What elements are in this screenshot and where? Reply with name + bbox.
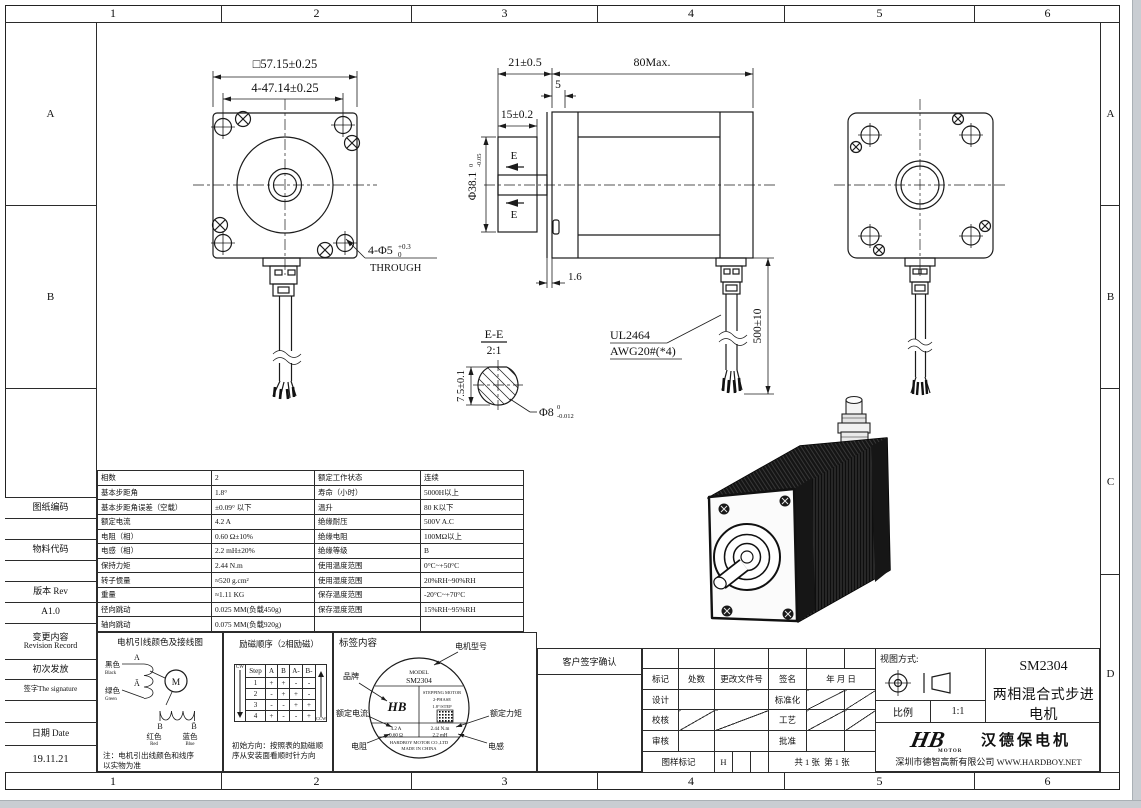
spec-value: 2.44 N.m	[212, 558, 315, 573]
rear-view-drawing	[830, 90, 1010, 400]
dim-body-length: 80Max.	[634, 55, 671, 69]
spec-value: ≈520 g.cm²	[212, 573, 315, 588]
part-title: 两相混合式步进电机	[986, 684, 1101, 724]
label-logo: HB	[387, 699, 407, 714]
spec-value: B	[421, 544, 524, 559]
scale-value: 1:1	[931, 701, 986, 723]
spec-label: 绝缘等级	[315, 544, 421, 559]
grid-col-label: 1	[5, 5, 222, 22]
callout-inductance: 电感	[488, 741, 504, 751]
material-code-label: 物料代码	[5, 540, 96, 561]
cw-arrow-cell: CW	[235, 665, 246, 722]
wiring-title: 电机引线颜色及接线图	[117, 636, 203, 647]
spec-table: 相数2额定工作状态连续 基本步距角1.8°寿命（小时）5000H以上 基本步距角…	[97, 470, 524, 632]
excitation-table: CW StepABA-B- CCW 1++-- 2-++- 3--++	[234, 664, 327, 722]
front-cable	[263, 258, 301, 399]
spec-value: 4.2 A	[212, 514, 315, 529]
spec-label: 基本步距角误差（空载）	[98, 500, 212, 515]
dim-tol-sup: +0.3	[398, 243, 411, 251]
excitation-box: 励磁顺序（2相励磁） CW StepABA-B- CCW	[223, 632, 333, 772]
side-view-drawing: 21±0.5 80Max. 5 15±0.2 Φ38.1 0 -0.05 E	[440, 50, 800, 420]
lead-blue-en: Blue	[185, 742, 194, 747]
dim-shaft-sub: -0.012	[557, 413, 574, 420]
callout-model: 电机型号	[455, 641, 487, 651]
part-model: SM2304	[986, 659, 1101, 675]
ccw-arrow-cell: CCW	[316, 665, 327, 722]
wiring-diagram-box: 电机引线颜色及接线图 黑色 Black A 绿色 Green Ā M B B̄ …	[97, 632, 223, 772]
sample-mark-value: H	[715, 752, 733, 773]
grid-col-label: 4	[598, 773, 785, 790]
bottom-scrollbar[interactable]	[0, 800, 1141, 808]
col-doc-no: 更改文件号	[715, 669, 769, 690]
company-cell: HB MOTOR 汉德保电机 深圳市德智高新有限公司 WWW.HARDBOY.N…	[876, 723, 1101, 773]
dim-shaft-dia: Φ8	[539, 405, 554, 419]
rev-label: 版本 Rev	[5, 582, 96, 603]
grid-row-label: D	[1101, 575, 1120, 772]
phase-b: B	[157, 722, 162, 731]
row-design: 设计	[643, 690, 679, 710]
dim-shaft-flat: 7.5±0.1	[456, 370, 467, 402]
projection-symbol-icon	[882, 669, 977, 697]
wiring-note-2: 以实物为准	[103, 760, 141, 770]
spec-value: 0.075 MM(负载920g)	[212, 617, 315, 632]
spec-value: 连续	[421, 471, 524, 486]
dim-square: □57.15±0.25	[253, 57, 317, 71]
spec-label: 电阻（相）	[98, 529, 212, 544]
dim-cable-length: 500±10	[752, 308, 764, 343]
callout-resistance: 电阻	[351, 741, 367, 751]
grid-col-label: 5	[785, 5, 975, 22]
grid-col-label: 6	[975, 5, 1120, 22]
date-label: 日期 Date	[5, 723, 96, 746]
callout-torque: 额定力矩	[490, 708, 522, 718]
view-method-label: 视图方式:	[876, 649, 985, 665]
col-mark: 标记	[643, 669, 679, 690]
front-view-drawing: □57.15±0.25 4-47.14±0.25 4-Φ5 +0.3 0 TH	[190, 55, 440, 400]
label-torque: 2.44 N.m	[431, 727, 450, 732]
label-type-3: 1.8°/STEP	[432, 704, 452, 709]
label-type-2: 2-PHASE	[433, 697, 451, 702]
spec-label: 保存温度范围	[315, 588, 421, 603]
dim-front-length: 21±0.5	[508, 55, 542, 69]
spec-label: 径向跳动	[98, 602, 212, 617]
excitation-note: 初始方向：按照表的励磁顺序从安装面看顺时针方向	[232, 741, 332, 762]
excitation-title: 励磁顺序（2相励磁）	[224, 638, 334, 650]
spec-label: 温升	[315, 500, 421, 515]
dim-pilot-sup: 0	[468, 164, 475, 167]
drawing-code-label: 图纸编码	[5, 498, 96, 519]
customer-confirm-label: 客户签字确认	[538, 649, 641, 675]
section-scale: 2:1	[487, 345, 502, 357]
spec-label: 保存湿度范围	[315, 602, 421, 617]
label-type-1: STEPPING MOTOR	[423, 690, 461, 695]
callout-current: 额定电流	[336, 708, 368, 718]
signature-table: 标记 处数 更改文件号 签名 年 月 日 设计 标准化 校核 工艺 审核 批准 …	[642, 648, 876, 773]
spec-label: 重量	[98, 588, 212, 603]
row-craft: 工艺	[769, 710, 807, 731]
label-content-box: 标签内容 MODEL SM2304 HB STEPPING MOTOR 2-PH…	[333, 632, 537, 772]
company-line: 深圳市德智高新有限公司 WWW.HARDBOY.NET	[876, 755, 1101, 768]
phase-a: A	[134, 653, 140, 662]
signature-label: 签字The signature	[5, 680, 96, 701]
spec-value: 2	[212, 471, 315, 486]
spec-value: 20%RH~90%RH	[421, 573, 524, 588]
grid-row-label: B	[5, 206, 96, 389]
iso-photo-view	[690, 390, 930, 645]
dim-pilot-sub: -0.05	[476, 153, 483, 167]
spec-label: 额定工作状态	[315, 471, 421, 486]
rev-value: A1.0	[5, 603, 96, 624]
spec-label: 额定电流	[98, 514, 212, 529]
sheet-count-cell: 共 1 张 第 1 张	[769, 752, 876, 773]
grid-col-label: 3	[412, 5, 598, 22]
phase-b-bar: B̄	[191, 722, 196, 731]
qr-code-icon	[437, 710, 453, 722]
dim-through: THROUGH	[370, 263, 422, 274]
dim-shaft-sup: 0	[557, 404, 560, 411]
grid-row-label: A	[1101, 23, 1120, 206]
label-inductance: 2.2 mH	[433, 734, 448, 739]
top-coordinate-strip: 1 2 3 4 5 6	[5, 5, 1120, 23]
spec-value: 0.025 MM(负载450g)	[212, 602, 315, 617]
mounting-holes	[211, 113, 357, 255]
lead-black-en: Black	[105, 671, 117, 676]
spec-value: 80 K以下	[421, 500, 524, 515]
drawing-code-value	[5, 519, 96, 540]
right-scrollbar[interactable]	[1132, 0, 1141, 808]
col-date: 年 月 日	[807, 669, 876, 690]
section-title: E-E	[485, 327, 504, 341]
lead-green-en: Green	[105, 697, 117, 702]
motor-symbol: M	[172, 678, 181, 688]
part-name-cell: SM2304 两相混合式步进电机	[986, 649, 1101, 723]
row-standard: 标准化	[769, 690, 807, 710]
spec-label: 相数	[98, 471, 212, 486]
spec-label	[315, 617, 421, 632]
dim-step: 5	[555, 79, 561, 91]
cable-spec-1: UL2464	[610, 328, 650, 342]
grid-row-label: B	[1101, 206, 1120, 389]
customer-confirm-box: 客户签字确认	[537, 648, 642, 772]
spec-value: 0.60 Ω±10%	[212, 529, 315, 544]
rear-cable	[905, 258, 935, 395]
dim-pitch: 4-47.14±0.25	[251, 81, 318, 95]
material-code-value	[5, 561, 96, 582]
grid-col-label: 2	[222, 773, 412, 790]
wiring-note-1: 注：电机引出线颜色和线序	[103, 750, 195, 760]
lead-red-cn: 红色	[147, 731, 162, 741]
grid-col-label: 6	[975, 773, 1120, 790]
col-sign: 签名	[769, 669, 807, 690]
drawing-sheet: 1 2 3 4 5 6 1 2 3 4 5 6 A B A B C D □5	[0, 0, 1141, 808]
spec-label: 使用湿度范围	[315, 573, 421, 588]
callout-brand: 品牌	[343, 671, 359, 681]
row-check: 校核	[643, 710, 679, 731]
mounting-holes	[858, 123, 983, 248]
row-approve: 批准	[769, 731, 807, 752]
spec-value: ±0.09° 以下	[212, 500, 315, 515]
label-model: SM2304	[406, 676, 432, 685]
side-cable	[716, 258, 747, 393]
grid-row-label: A	[5, 23, 96, 206]
spec-value: 0°C~+50°C	[421, 558, 524, 573]
spec-value: 100MΩ以上	[421, 529, 524, 544]
spec-value: -20°C~+70°C	[421, 588, 524, 603]
spec-label: 绝缘耐压	[315, 514, 421, 529]
label-current: 4.2 A	[391, 727, 402, 732]
grid-col-label: 5	[785, 773, 975, 790]
revision-record-panel: 图纸编码 物料代码 版本 Rev A1.0 变更内容Revision Recor…	[5, 497, 97, 772]
spec-label: 寿命（小时）	[315, 485, 421, 500]
spec-value: ≈1.11 KG	[212, 588, 315, 603]
dim-front-step: 1.6	[568, 271, 582, 283]
spec-value: 5000H以上	[421, 485, 524, 500]
customer-confirm-area	[538, 675, 641, 773]
spec-label: 基本步距角	[98, 485, 212, 500]
spec-value: 1.8°	[212, 485, 315, 500]
section-mark-top: E	[511, 150, 518, 162]
label-title: 标签内容	[339, 637, 378, 649]
screw-icons	[213, 112, 360, 258]
spec-value: 500V A.C	[421, 514, 524, 529]
date-value: 19.11.21	[5, 746, 96, 773]
spec-label: 轴向跳动	[98, 617, 212, 632]
right-coordinate-strip: A B C D	[1100, 23, 1120, 772]
phase-a-bar: Ā	[134, 679, 140, 688]
bottom-coordinate-strip: 1 2 3 4 5 6	[5, 772, 1120, 790]
brand-name: 汉德保电机	[981, 729, 1071, 750]
row-review: 审核	[643, 731, 679, 752]
spec-label: 绝缘电阻	[315, 529, 421, 544]
dim-tol-sub: 0	[398, 251, 402, 259]
title-block: 视图方式: 比例 1:1 SM2304 两相混合式步进电机 HB MOTOR 汉…	[875, 648, 1100, 772]
spec-label: 转子惯量	[98, 573, 212, 588]
spec-value: 2.2 mH±20%	[212, 544, 315, 559]
spec-label: 保持力矩	[98, 558, 212, 573]
sample-mark-label: 图样标记	[643, 752, 715, 773]
spec-value: 15%RH~95%RH	[421, 602, 524, 617]
cable-spec-2: AWG20#(*4)	[610, 344, 676, 358]
spec-value	[421, 617, 524, 632]
dim-corner-holes: 4-Φ5	[368, 243, 393, 257]
grid-col-label: 2	[222, 5, 412, 22]
section-mark-bottom: E	[511, 209, 518, 221]
dim-pilot-dia: Φ38.1	[467, 171, 479, 200]
hardboy-logo-sub: MOTOR	[938, 749, 962, 754]
lead-blue-cn: 蓝色	[183, 731, 198, 741]
lead-black-cn: 黑色	[105, 659, 120, 669]
scale-label: 比例	[876, 701, 931, 723]
signature-value	[5, 701, 96, 723]
label-resistance: 0.60 Ω	[389, 734, 403, 739]
label-origin: MADE IN CHINA	[401, 746, 437, 751]
view-method-cell: 视图方式:	[876, 649, 986, 701]
grid-col-label: 4	[598, 5, 785, 22]
lead-green-cn: 绿色	[105, 685, 120, 695]
grid-col-label: 1	[5, 773, 222, 790]
col-qty: 处数	[679, 669, 715, 690]
spec-label: 使用温度范围	[315, 558, 421, 573]
spec-label: 电感（相）	[98, 544, 212, 559]
lead-red-en: Red	[150, 742, 158, 747]
first-issue-label: 初次发放	[5, 660, 96, 680]
revision-record-label: 变更内容Revision Record	[5, 624, 96, 660]
dim-shaft-length: 15±0.2	[501, 109, 533, 121]
grid-row-label: C	[1101, 389, 1120, 575]
grid-col-label: 3	[412, 773, 598, 790]
